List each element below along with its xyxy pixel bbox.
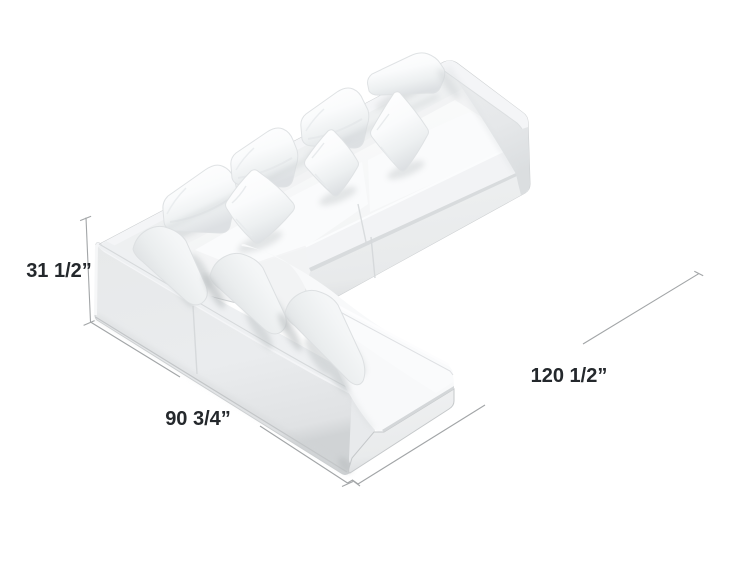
svg-text:120 1/2”: 120 1/2” (531, 365, 608, 387)
svg-text:31 1/2”: 31 1/2” (26, 260, 92, 282)
svg-text:90 3/4”: 90 3/4” (165, 408, 231, 430)
